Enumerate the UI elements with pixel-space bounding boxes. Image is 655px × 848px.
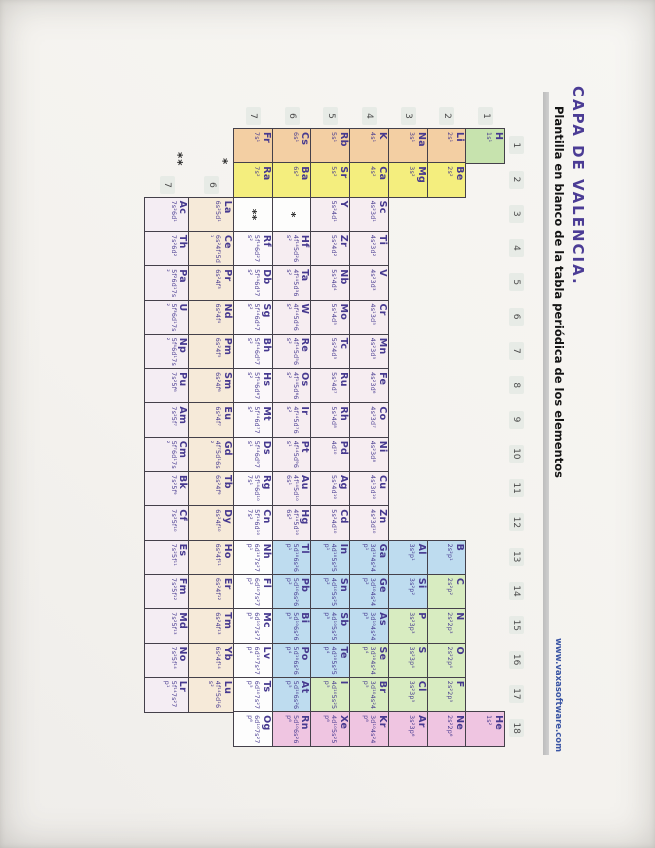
element-symbol: Ti (376, 235, 387, 265)
valence-configuration: 4s¹3d¹⁰ (369, 475, 376, 505)
element-symbol: Dy (221, 509, 232, 539)
element-symbol: Rn (299, 715, 310, 745)
element-symbol: Br (376, 681, 387, 711)
element-cell-Sg: Sg5f¹⁴6d⁴7s² (233, 300, 273, 336)
valence-configuration: 5d¹⁰6s²6p⁶ (284, 715, 298, 745)
element-cell-Re: Re4f¹⁴5d⁵6s² (271, 334, 311, 370)
element-cell-V: V4s²3d³ (349, 265, 389, 301)
element-symbol: Sm (221, 372, 232, 402)
element-cell-At: At5d¹⁰6s²6p⁵ (271, 677, 311, 713)
element-cell-Lu: Lu4f¹⁴5d¹6s² (189, 677, 235, 713)
element-cell-Cn: Cn5f¹⁴6d¹⁰7s² (233, 505, 273, 541)
element-symbol: Ba (299, 166, 310, 196)
element-symbol: Na (415, 132, 426, 162)
group-label-4: 4 (509, 239, 524, 257)
element-symbol: Er (221, 578, 232, 608)
element-symbol: Cl (415, 681, 426, 711)
valence-configuration: 6s²4f⁹ (214, 475, 221, 505)
group-label-9: 9 (509, 411, 524, 429)
group-label-3: 3 (509, 205, 524, 223)
valence-configuration: 6s²4f¹¹ (214, 544, 221, 574)
element-symbol: Es (177, 544, 188, 574)
valence-configuration: 4d¹⁰5s²5p⁵ (323, 681, 337, 711)
valence-configuration: 6d¹⁰7s²7p⁶ (246, 715, 260, 745)
period-label-4: 4 (362, 107, 377, 125)
valence-configuration: 3d¹⁰4s²4p² (362, 578, 376, 608)
valence-configuration: 6s²4f⁵ (214, 338, 221, 368)
element-symbol: Te (337, 647, 348, 677)
element-cell-In: In4d¹⁰5s²5p¹ (310, 540, 350, 576)
element-symbol: I (337, 681, 348, 711)
valence-configuration: 6s²4f⁶ (214, 372, 221, 402)
valence-configuration: 4s²3d¹⁰ (369, 509, 376, 539)
valence-configuration: 2s¹ (446, 132, 453, 162)
valence-configuration: 6s²4f¹5d¹ (207, 235, 221, 265)
element-symbol: Al (415, 544, 426, 574)
element-symbol: B (453, 544, 464, 574)
photographed-worksheet: CAPA DE VALENCIA. Plantilla en blanco de… (0, 0, 655, 848)
element-cell-Ag: Ag5s¹4d¹⁰ (310, 471, 350, 507)
element-symbol: W (299, 304, 310, 334)
valence-configuration: 4s²3d³ (369, 269, 376, 299)
actinide-row-label: 7 (160, 176, 175, 194)
element-symbol: Ir (299, 406, 310, 436)
element-symbol: Sc (376, 201, 387, 231)
valence-configuration: 6d¹⁰7s²7p⁴ (246, 647, 260, 677)
element-cell-La: La6s²5d¹ (189, 197, 235, 233)
valence-configuration: 7s²6d² (170, 235, 177, 265)
element-cell-Lr: Lr5f¹⁴7s²7p¹ (144, 677, 190, 713)
valence-configuration: 3s²3p³ (408, 612, 415, 642)
element-symbol: Db (260, 269, 271, 299)
element-symbol: He (492, 715, 503, 745)
valence-configuration: 5f³6d¹7s² (162, 304, 176, 334)
valence-configuration: 3s²3p⁶ (408, 715, 415, 745)
element-cell-Zr: Zr5s²4d² (310, 231, 350, 267)
element-cell-Ni: Ni4s²3d⁸ (349, 437, 389, 473)
valence-configuration: 7s²6d¹ (170, 201, 177, 231)
element-cell-Ts: Ts6d¹⁰7s²7p⁵ (233, 677, 273, 713)
element-cell-Md: Md7s²5f¹³ (144, 608, 190, 644)
element-cell-Pb: Pb5d¹⁰6s²6p² (271, 574, 311, 610)
valence-configuration: 5s² (330, 166, 337, 196)
valence-configuration: 7s¹ (253, 132, 260, 162)
element-symbol: Sn (337, 578, 348, 608)
element-symbol: Pu (177, 372, 188, 402)
element-symbol: Eu (221, 406, 232, 436)
valence-configuration: 7s²5f¹³ (170, 612, 177, 642)
element-cell-Sn: Sn4d¹⁰5s²5p² (310, 574, 350, 610)
valence-configuration: 4f¹⁴5d¹⁰6s² (284, 509, 298, 539)
group-label-18: 18 (509, 719, 524, 737)
valence-configuration: 5d¹⁰6s²6p¹ (284, 544, 298, 574)
valence-configuration: 7s²5f⁹ (170, 475, 177, 505)
element-symbol: Mg (415, 166, 426, 196)
element-cell-No: No7s²5f¹⁴ (144, 643, 190, 679)
element-symbol: C (453, 578, 464, 608)
valence-configuration: 2s²2p⁵ (446, 681, 453, 711)
element-cell-Mo: Mo5s¹4d⁵ (310, 300, 350, 336)
element-cell-Er: Er6s²4f¹² (189, 574, 235, 610)
element-symbol: Cd (337, 509, 348, 539)
element-symbol: Rf (260, 235, 271, 265)
element-cell-W: W4f¹⁴5d⁴6s² (271, 300, 311, 336)
element-cell-Cl: Cl3s²3p⁵ (387, 677, 427, 713)
valence-configuration: 6d¹⁰7s²7p¹ (246, 544, 260, 574)
element-cell-Am: Am7s²5f⁷ (144, 402, 190, 438)
element-symbol: K (376, 132, 387, 162)
element-cell-Y: Y5s²4d¹ (310, 197, 350, 233)
valence-configuration: 5f¹⁴6d¹⁰7s¹ (246, 475, 260, 505)
element-cell-B: B2s²p¹ (426, 540, 466, 576)
valence-configuration: 4d¹⁰5s²5p⁴ (323, 647, 337, 677)
element-cell-Tl: Tl5d¹⁰6s²6p¹ (271, 540, 311, 576)
valence-configuration: 5s²4d² (330, 235, 337, 265)
element-cell-Gd: Gd4f⁷5d¹6s² (189, 437, 235, 473)
element-symbol: Ni (376, 441, 387, 471)
element-cell-Db: Db5f¹⁴6d³7s² (233, 265, 273, 301)
element-cell-Nh: Nh6d¹⁰7s²7p¹ (233, 540, 273, 576)
element-symbol: Hg (299, 509, 310, 539)
element-symbol: Se (376, 647, 387, 677)
element-cell-Ne: Ne2s²2p⁶ (426, 711, 466, 747)
element-cell-Si: Si3s²p² (387, 574, 427, 610)
element-cell-Hs: Hs5f¹⁴6d⁶7s² (233, 368, 273, 404)
element-symbol: Rb (337, 132, 348, 162)
element-symbol: Ge (376, 578, 387, 608)
element-symbol: Ca (376, 166, 387, 196)
element-cell-Bi: Bi5d¹⁰6s²6p³ (271, 608, 311, 644)
valence-configuration: 4d¹⁰5s²5p² (323, 578, 337, 608)
element-cell-I: I4d¹⁰5s²5p⁵ (310, 677, 350, 713)
element-cell-Np: Np5f⁴6d¹7s² (144, 334, 190, 370)
valence-configuration: 4s²3d⁸ (369, 441, 376, 471)
valence-configuration: 6s²4f³ (214, 269, 221, 299)
valence-configuration: 4s¹3d⁵ (369, 304, 376, 334)
element-cell-Fl: Fl6d¹⁰7s²7p² (233, 574, 273, 610)
element-cell-Hg: Hg4f¹⁴5d¹⁰6s² (271, 505, 311, 541)
element-symbol: Mt (260, 406, 271, 436)
element-symbol: Ra (260, 166, 271, 196)
element-cell-Sb: Sb4d¹⁰5s²5p³ (310, 608, 350, 644)
element-cell-Th: Th7s²6d² (144, 231, 190, 267)
valence-configuration: 6s²4f¹⁰ (214, 509, 221, 539)
element-symbol: Ho (221, 544, 232, 574)
valence-configuration: 4s²3d⁵ (369, 338, 376, 368)
element-symbol: P (415, 612, 426, 642)
element-symbol: Nh (260, 544, 271, 574)
valence-configuration: 5s¹4d⁴ (330, 269, 337, 299)
element-cell-Nb: Nb5s¹4d⁴ (310, 265, 350, 301)
period-label-6: 6 (285, 107, 300, 125)
element-symbol: Pd (337, 441, 348, 471)
valence-configuration: 4f¹⁴5d⁷6s² (284, 406, 298, 436)
valence-configuration: 7s²5f⁷ (170, 406, 177, 436)
element-cell-Og: Og6d¹⁰7s²7p⁶ (233, 711, 273, 747)
lanthanide-row-label: 6 (205, 176, 220, 194)
element-symbol: Fm (177, 578, 188, 608)
valence-configuration: 6s²4f⁷ (214, 406, 221, 436)
group-label-7: 7 (509, 342, 524, 360)
valence-configuration: 2s²2p⁶ (446, 715, 453, 745)
element-symbol: Cm (177, 441, 188, 471)
element-symbol: Co (376, 406, 387, 436)
element-cell-Co: Co4s²3d⁷ (349, 402, 389, 438)
element-cell-Fr: Fr7s¹ (233, 128, 273, 164)
element-symbol: N (453, 612, 464, 642)
element-cell-Ge: Ge3d¹⁰4s²4p² (349, 574, 389, 610)
valence-configuration: 4s²3d⁶ (369, 372, 376, 402)
valence-configuration: 4s² (369, 166, 376, 196)
element-symbol: Th (177, 235, 188, 265)
element-symbol: Pt (299, 441, 310, 471)
valence-configuration: 4d¹⁰5s²5p¹ (323, 544, 337, 574)
element-cell-Ir: Ir4f¹⁴5d⁷6s² (271, 402, 311, 438)
valence-configuration: 5s¹4d⁵ (330, 304, 337, 334)
element-cell-Ce: Ce6s²4f¹5d¹ (189, 231, 235, 267)
element-symbol: Au (299, 475, 310, 505)
element-symbol: Tl (299, 544, 310, 574)
valence-configuration: 4f¹⁴5d⁵6s² (284, 338, 298, 368)
valence-configuration: 5d¹⁰6s²6p⁵ (284, 681, 298, 711)
element-cell-Bh: Bh5f¹⁴6d⁵7s² (233, 334, 273, 370)
valence-configuration: 6s²4f¹² (214, 578, 221, 608)
element-cell-Pu: Pu7s²5f⁶ (144, 368, 190, 404)
element-symbol: V (376, 269, 387, 299)
valence-configuration: 5d¹⁰6s²6p⁴ (284, 647, 298, 677)
element-cell-Pd: Pd4d¹⁰ (310, 437, 350, 473)
element-symbol: Y (337, 201, 348, 231)
valence-configuration: 3s²3p⁵ (408, 681, 415, 711)
element-symbol: Gd (221, 441, 232, 471)
element-cell-Mn: Mn4s²3d⁵ (349, 334, 389, 370)
element-cell-Cu: Cu4s¹3d¹⁰ (349, 471, 389, 507)
element-cell-Po: Po5d¹⁰6s²6p⁴ (271, 643, 311, 679)
element-cell-Zn: Zn4s²3d¹⁰ (349, 505, 389, 541)
valence-configuration: 6s²4f¹³ (214, 612, 221, 642)
element-symbol: Fe (376, 372, 387, 402)
valence-configuration: 4f¹⁴5d⁹6s¹ (284, 441, 298, 471)
element-symbol: Pa (177, 269, 188, 299)
group-label-15: 15 (509, 616, 524, 634)
valence-configuration: 5f¹⁴6d³7s² (246, 269, 260, 299)
valence-configuration: 5f¹⁴6d⁷7s² (246, 406, 260, 436)
element-cell-S: S3s²3p⁴ (387, 643, 427, 679)
valence-configuration: 6d¹⁰7s²7p⁵ (246, 681, 260, 711)
element-cell-Hf: Hf4f¹⁴5d²6s² (271, 231, 311, 267)
element-symbol: Os (299, 372, 310, 402)
valence-configuration: 3s²p² (408, 578, 415, 608)
valence-configuration: 5s²4d¹⁰ (330, 509, 337, 539)
valence-configuration: 4f¹⁴5d⁴6s² (284, 304, 298, 334)
valence-configuration: 5f¹⁴6d¹⁰7s² (246, 509, 260, 539)
element-symbol: Ce (221, 235, 232, 265)
valence-configuration: 6s²4f⁴ (214, 304, 221, 334)
element-symbol: F (453, 681, 464, 711)
element-cell-O: O2s²2p⁴ (426, 643, 466, 679)
element-symbol: H (492, 132, 503, 162)
valence-configuration: 2s²p² (446, 578, 453, 608)
element-symbol: Hs (260, 372, 271, 402)
valence-configuration: 5s²4d¹ (330, 201, 337, 231)
element-symbol: Fr (260, 132, 271, 162)
valence-configuration: 5s¹ (330, 132, 337, 162)
series-placeholder-cell: ** (233, 197, 273, 233)
element-symbol: La (221, 201, 232, 231)
element-symbol: In (337, 544, 348, 574)
group-label-6: 6 (509, 308, 524, 326)
element-symbol: Tm (221, 612, 232, 642)
valence-configuration: 2s² (446, 166, 453, 196)
element-symbol: O (453, 647, 464, 677)
element-cell-Ds: Ds5f¹⁴6d⁹7s¹ (233, 437, 273, 473)
element-cell-Sc: Sc4s²3d¹ (349, 197, 389, 233)
valence-configuration: 2s²p¹ (446, 544, 453, 574)
element-cell-Ta: Ta4f¹⁴5d³6s² (271, 265, 311, 301)
group-label-13: 13 (509, 548, 524, 566)
element-cell-Cs: Cs6s¹ (271, 128, 311, 164)
valence-configuration: 4f¹⁴5d²6s² (284, 235, 298, 265)
group-label-10: 10 (509, 445, 524, 463)
element-symbol: Hf (299, 235, 310, 265)
period-label-3: 3 (401, 107, 416, 125)
element-symbol: Cf (177, 509, 188, 539)
element-cell-Ba: Ba6s² (271, 162, 311, 198)
valence-configuration: 7s²5f¹² (170, 578, 177, 608)
element-symbol: As (376, 612, 387, 642)
element-cell-Os: Os4f¹⁴5d⁶6s² (271, 368, 311, 404)
valence-configuration: 4s²3d² (369, 235, 376, 265)
element-cell-Ra: Ra7s² (233, 162, 273, 198)
vaxasoftware-url: www.vaxasoftware.com (553, 612, 563, 752)
valence-configuration: 6s² (292, 166, 299, 196)
element-cell-Tb: Tb6s²4f⁹ (189, 471, 235, 507)
element-symbol: Zr (337, 235, 348, 265)
element-symbol: Nb (337, 269, 348, 299)
element-symbol: Cr (376, 304, 387, 334)
element-cell-Pa: Pa5f²6d¹7s² (144, 265, 190, 301)
valence-configuration: 4f⁷5d¹6s² (207, 441, 221, 471)
element-cell-Pt: Pt4f¹⁴5d⁹6s¹ (271, 437, 311, 473)
element-cell-Rf: Rf5f¹⁴6d²7s² (233, 231, 273, 267)
element-symbol: Am (177, 406, 188, 436)
group-label-16: 16 (509, 651, 524, 669)
element-symbol: Cs (299, 132, 310, 162)
valence-configuration: 4d¹⁰5s²5p³ (323, 612, 337, 642)
valence-configuration: 5d¹⁰6s²6p³ (284, 612, 298, 642)
element-cell-Bk: Bk7s²5f⁹ (144, 471, 190, 507)
element-cell-N: N2s²2p³ (426, 608, 466, 644)
element-symbol: Og (260, 715, 271, 745)
valence-configuration: 6s²5d¹ (214, 201, 221, 231)
period-label-5: 5 (323, 107, 338, 125)
element-cell-Mg: Mg3s² (387, 162, 427, 198)
valence-configuration: 4s²3d¹ (369, 201, 376, 231)
valence-configuration: 7s² (253, 166, 260, 196)
valence-configuration: 5d¹⁰6s²6p² (284, 578, 298, 608)
element-symbol: Ru (337, 372, 348, 402)
element-cell-Te: Te4d¹⁰5s²5p⁴ (310, 643, 350, 679)
element-cell-Sm: Sm6s²4f⁶ (189, 368, 235, 404)
group-label-8: 8 (509, 376, 524, 394)
group-label-5: 5 (509, 273, 524, 291)
element-symbol: At (299, 681, 310, 711)
element-cell-As: As3d¹⁰4s²4p³ (349, 608, 389, 644)
element-symbol: Si (415, 578, 426, 608)
element-cell-C: C2s²p² (426, 574, 466, 610)
element-cell-Xe: Xe4d¹⁰5s²5p⁶ (310, 711, 350, 747)
element-cell-Se: Se3d¹⁰4s²4p⁴ (349, 643, 389, 679)
element-cell-Mt: Mt5f¹⁴6d⁷7s² (233, 402, 273, 438)
element-symbol: Nd (221, 304, 232, 334)
valence-configuration: 6s²4f¹⁴ (214, 647, 221, 677)
element-symbol: Sr (337, 166, 348, 196)
valence-configuration: 5f¹⁴6d⁶7s² (246, 372, 260, 402)
valence-configuration: 4d¹⁰5s²5p⁶ (323, 715, 337, 745)
element-cell-He: He1s² (465, 711, 505, 747)
element-symbol: Kr (376, 715, 387, 745)
valence-configuration: 3d¹⁰4s²4p³ (362, 612, 376, 642)
element-cell-Cr: Cr4s¹3d⁵ (349, 300, 389, 336)
period-label-2: 2 (440, 107, 455, 125)
valence-configuration: 4d¹⁰ (330, 441, 337, 471)
valence-configuration: 5f²6d¹7s² (162, 269, 176, 299)
actinide-marker: ** (172, 152, 186, 172)
element-cell-P: P3s²3p³ (387, 608, 427, 644)
element-cell-Tm: Tm6s²4f¹³ (189, 608, 235, 644)
valence-configuration: 5s¹4d⁸ (330, 406, 337, 436)
valence-configuration: 1s² (485, 715, 492, 745)
valence-configuration: 3s² (408, 166, 415, 196)
period-label-1: 1 (478, 107, 493, 125)
element-cell-Rb: Rb5s¹ (310, 128, 350, 164)
element-symbol: Md (177, 612, 188, 642)
element-cell-Sr: Sr5s² (310, 162, 350, 198)
element-symbol: Xe (337, 715, 348, 745)
valence-configuration: 6s¹ (292, 132, 299, 162)
element-cell-Kr: Kr3d¹⁰4s²4p⁶ (349, 711, 389, 747)
element-symbol: Bh (260, 338, 271, 368)
series-placeholder-cell: * (271, 197, 311, 233)
element-symbol: Rg (260, 475, 271, 505)
valence-configuration: 5s²4d⁵ (330, 338, 337, 368)
element-cell-Be: Be2s² (426, 162, 466, 198)
valence-configuration: 7s²5f¹⁴ (170, 647, 177, 677)
element-symbol: Tc (337, 338, 348, 368)
valence-configuration: 4f¹⁴5d⁶6s² (284, 372, 298, 402)
element-cell-Ac: Ac7s²6d¹ (144, 197, 190, 233)
element-symbol: Tb (221, 475, 232, 505)
valence-configuration: 5s¹4d¹⁰ (330, 475, 337, 505)
element-symbol: U (177, 304, 188, 334)
element-symbol: Lr (177, 681, 188, 711)
valence-configuration: 5f¹⁴6d²7s² (246, 235, 260, 265)
element-cell-Ti: Ti4s²3d² (349, 231, 389, 267)
element-cell-H: H1s¹ (465, 128, 505, 164)
element-symbol: Bk (177, 475, 188, 505)
element-cell-Au: Au4f¹⁴5d¹⁰6s¹ (271, 471, 311, 507)
element-cell-Ar: Ar3s²3p⁶ (387, 711, 427, 747)
valence-configuration: 2s²2p⁴ (446, 647, 453, 677)
valence-configuration: 4s¹ (369, 132, 376, 162)
element-cell-Ca: Ca4s² (349, 162, 389, 198)
element-symbol: Pr (221, 269, 232, 299)
element-symbol: Ga (376, 544, 387, 574)
valence-configuration: 4f¹⁴5d¹6s² (207, 681, 221, 711)
group-label-2: 2 (509, 171, 524, 189)
valence-configuration: 7s²5f¹⁰ (170, 509, 177, 539)
element-cell-Mc: Mc6d¹⁰7s²7p³ (233, 608, 273, 644)
